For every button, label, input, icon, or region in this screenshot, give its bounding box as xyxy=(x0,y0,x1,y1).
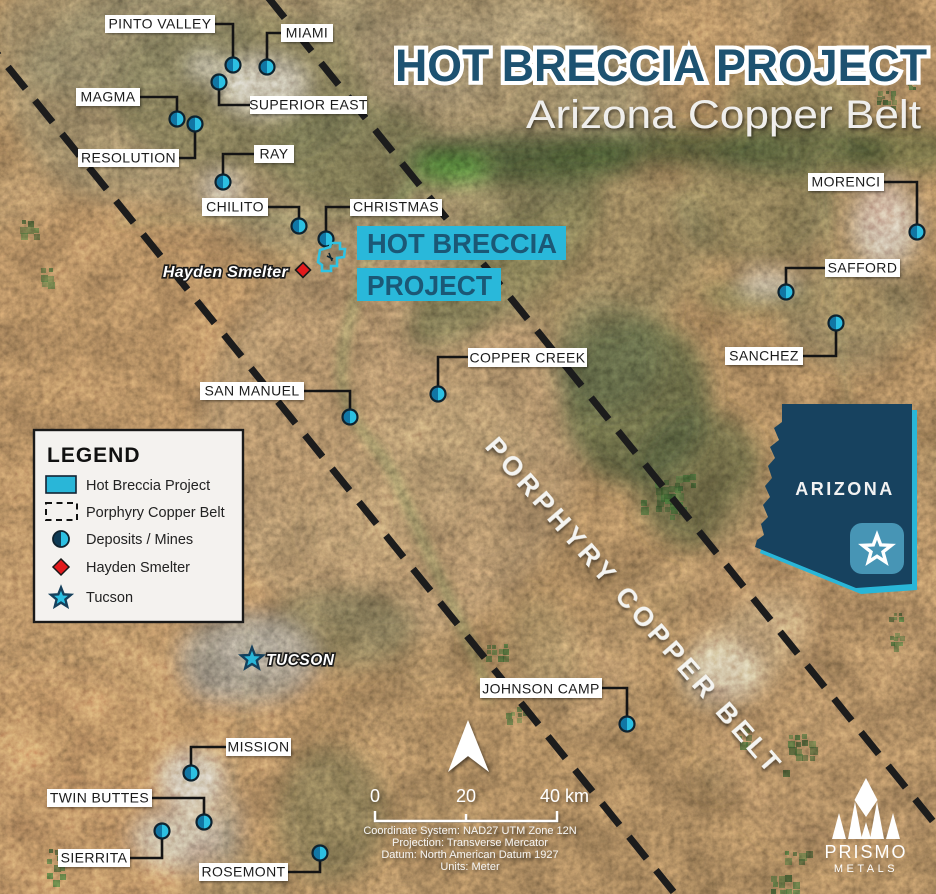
svg-text:PINTO VALLEY: PINTO VALLEY xyxy=(108,16,211,32)
svg-text:SAN MANUEL: SAN MANUEL xyxy=(204,383,299,399)
svg-text:ARIZONA: ARIZONA xyxy=(795,479,895,499)
svg-text:ROSEMONT: ROSEMONT xyxy=(201,864,285,880)
svg-text:MISSION: MISSION xyxy=(228,739,290,755)
svg-text:SANCHEZ: SANCHEZ xyxy=(729,348,799,364)
svg-text:CHILITO: CHILITO xyxy=(206,199,264,215)
svg-text:PRISMO: PRISMO xyxy=(824,842,907,862)
svg-text:SIERRITA: SIERRITA xyxy=(61,850,128,866)
svg-text:Hayden Smelter: Hayden Smelter xyxy=(86,560,190,576)
svg-text:RESOLUTION: RESOLUTION xyxy=(81,150,176,166)
svg-text:LEGEND: LEGEND xyxy=(47,444,141,467)
svg-text:SUPERIOR EAST: SUPERIOR EAST xyxy=(249,97,368,113)
svg-text:HOT BRECCIA: HOT BRECCIA xyxy=(367,228,557,259)
svg-text:20: 20 xyxy=(456,786,476,806)
svg-text:HOT BRECCIA PROJECT: HOT BRECCIA PROJECT xyxy=(395,40,927,91)
svg-text:MAGMA: MAGMA xyxy=(81,89,136,105)
svg-text:Hot Breccia Project: Hot Breccia Project xyxy=(86,478,210,494)
svg-text:Arizona Copper Belt: Arizona Copper Belt xyxy=(526,93,921,137)
svg-text:TWIN BUTTES: TWIN BUTTES xyxy=(50,790,149,806)
svg-text:Tucson: Tucson xyxy=(86,590,133,606)
svg-text:Porphyry Copper Belt: Porphyry Copper Belt xyxy=(86,505,225,521)
svg-text:0: 0 xyxy=(370,786,380,806)
svg-text:MORENCI: MORENCI xyxy=(812,174,881,190)
svg-text:MIAMI: MIAMI xyxy=(286,25,328,41)
svg-text:Deposits / Mines: Deposits / Mines xyxy=(86,532,193,548)
svg-text:Units: Meter: Units: Meter xyxy=(440,861,500,873)
svg-text:Datum: North American Datum 19: Datum: North American Datum 1927 xyxy=(381,849,558,861)
svg-text:Hayden Smelter: Hayden Smelter xyxy=(163,264,289,281)
svg-text:COPPER CREEK: COPPER CREEK xyxy=(469,350,585,366)
svg-text:SAFFORD: SAFFORD xyxy=(828,260,898,276)
svg-text:Coordinate System: NAD27 UTM Z: Coordinate System: NAD27 UTM Zone 12N xyxy=(363,825,576,837)
svg-text:JOHNSON CAMP: JOHNSON CAMP xyxy=(482,681,600,697)
svg-text:RAY: RAY xyxy=(260,146,289,162)
svg-text:CHRISTMAS: CHRISTMAS xyxy=(353,199,439,215)
svg-text:TUCSON: TUCSON xyxy=(266,652,335,669)
svg-text:40 km: 40 km xyxy=(540,786,589,806)
svg-text:PROJECT: PROJECT xyxy=(367,270,492,301)
svg-text:Projection: Transverse Mercato: Projection: Transverse Mercator xyxy=(392,837,548,849)
svg-text:METALS: METALS xyxy=(834,863,898,875)
